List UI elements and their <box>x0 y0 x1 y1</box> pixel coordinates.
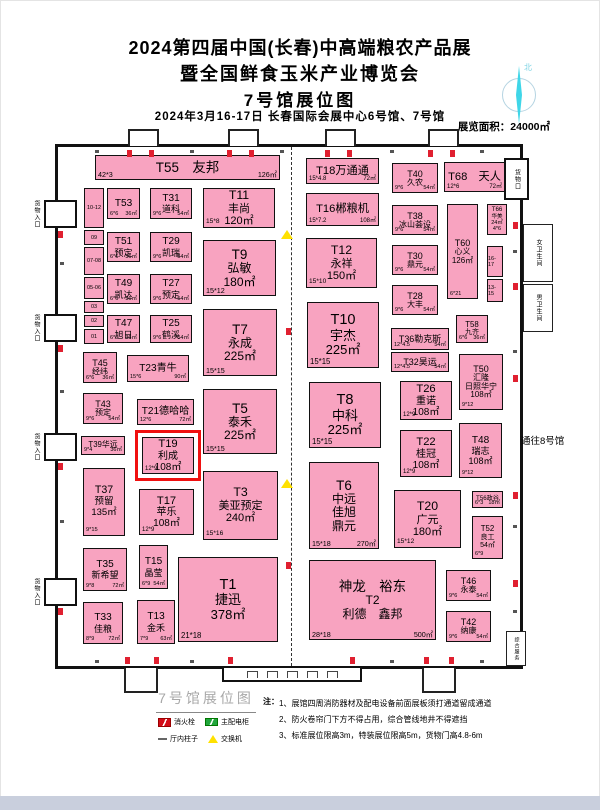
booth-T20[interactable]: T20广元180㎡15*12 <box>394 490 461 548</box>
legend-item-main-power-cabinet: 主配电柜 <box>205 717 249 727</box>
booth-T47[interactable]: T47旭日6*636㎡ <box>107 315 140 343</box>
booth-T23[interactable]: T23青牛15*690㎡ <box>127 355 189 382</box>
bottom-door-1 <box>124 668 158 693</box>
booth-T26[interactable]: T26重诺108㎡12*9 <box>400 381 452 420</box>
booth-T39[interactable]: T39华远9*436㎡ <box>81 436 125 455</box>
entrance-door-glyph <box>267 671 278 678</box>
note-line: 3、标准展位限高3m，特装展位限高5m，货物门高4.8-6m <box>279 728 579 744</box>
pillar-mark <box>480 150 484 153</box>
booth-T48[interactable]: T48瑞志108㎡9*12 <box>459 423 502 478</box>
booth-T49[interactable]: T49凯达6*636㎡ <box>107 274 140 304</box>
top-door-4 <box>428 129 459 146</box>
booth-T11[interactable]: T11丰尚120㎡15*8 <box>203 188 275 228</box>
pillar-mark <box>390 660 394 663</box>
entrance-door-glyph <box>287 671 298 678</box>
goods-entrance-door-4 <box>44 578 77 606</box>
fire-hydrant-icon <box>286 562 291 569</box>
booth-01[interactable]: 01 <box>84 329 104 344</box>
fire-hydrant-icon <box>125 657 130 664</box>
entrance-door-glyph <box>307 671 318 678</box>
goods-door-label: 货物口 <box>514 169 520 190</box>
fire-hydrant-icon <box>424 657 429 664</box>
legend-item-switch: 交换机 <box>208 734 242 744</box>
compass-north-label: 北 <box>524 62 532 73</box>
goods-door-right: 货物口 <box>504 158 529 200</box>
entrance-door-glyph <box>247 671 258 678</box>
note-line: 2、防火卷帘门下方不得占用，综合管线地井不得遮挡 <box>279 712 579 728</box>
fire-hydrant-icon <box>149 150 154 157</box>
booth-T31[interactable]: T31道科9*654㎡ <box>150 188 192 219</box>
main-power-cabinet-icon <box>205 718 218 726</box>
booth-T28[interactable]: T28大丰9*654㎡ <box>392 285 438 315</box>
booth-T7[interactable]: T7永成225㎡15*15 <box>203 309 277 376</box>
bottom-door-2 <box>422 668 456 693</box>
booth-16-17[interactable]: 16-17 <box>487 246 503 277</box>
fire-hydrant-icon <box>347 150 352 157</box>
booth-T35[interactable]: T35新希望9*872㎡ <box>83 548 127 591</box>
pillar-mark <box>513 250 517 253</box>
restroom-women: 女卫生间 <box>523 224 553 282</box>
notes-list: 1、展馆四周消防器材及配电设备前面展板须打通道留成通道2、防火卷帘门下方不得占用… <box>279 696 579 744</box>
center-aisle-dashed-line <box>291 147 292 666</box>
booth-T25[interactable]: T25鹤溪9*654㎡ <box>150 315 192 343</box>
fire-hydrant-icon <box>158 718 171 727</box>
fire-hydrant-icon <box>513 222 518 229</box>
booth-T46[interactable]: T46永泰9*654㎡ <box>446 570 491 601</box>
booth-T60[interactable]: T60心义126㎡6*21 <box>447 204 478 299</box>
booth-T12[interactable]: T12永祥150㎡15*10 <box>306 238 377 288</box>
booth-T68[interactable]: T68 天人12*672㎡ <box>444 162 505 192</box>
fire-hydrant-icon <box>127 150 132 157</box>
booth-05-06[interactable]: 05-06 <box>84 277 104 299</box>
fire-hydrant-icon <box>428 150 433 157</box>
hall-pillar-icon <box>158 738 167 740</box>
booth-07-08[interactable]: 07-08 <box>84 247 104 275</box>
booth-T52[interactable]: T52良工54㎡6*9 <box>472 516 503 559</box>
fire-hydrant-icon <box>58 231 63 238</box>
fire-hydrant-icon <box>227 150 232 157</box>
booth-T42[interactable]: T42纳康9*654㎡ <box>446 611 491 642</box>
pillar-mark <box>60 390 64 393</box>
pillar-mark <box>513 525 517 528</box>
hall-wall-right <box>520 144 523 669</box>
notes-prefix: 注： <box>263 696 279 707</box>
goods-entrance-door-3 <box>44 433 77 461</box>
restroom-women-label: 女卫生间 <box>535 239 541 267</box>
booth-T10[interactable]: T10宇杰225㎡15*15 <box>307 302 379 368</box>
legend-item-label: 厅内柱子 <box>170 734 198 744</box>
main-entrance <box>222 666 362 682</box>
booth-T15[interactable]: T15晶莹6*954㎡ <box>139 545 168 589</box>
booth-T53[interactable]: T536*636㎡ <box>107 188 140 219</box>
booth-T32[interactable]: T32昊运12*4.554㎡ <box>391 352 449 372</box>
booth-T9[interactable]: T9弘敏180㎡15*12 <box>203 240 276 296</box>
booth-T29[interactable]: T29凯瑞9*654㎡ <box>150 232 192 262</box>
booth-T37[interactable]: T37预留135㎡9*15 <box>83 468 125 536</box>
legend-items: 消火栓主配电柜厅内柱子交换机 <box>158 717 262 744</box>
pillar-mark <box>190 150 194 153</box>
booth-02[interactable]: 02 <box>84 315 104 327</box>
booth-T40[interactable]: T40久农9*654㎡ <box>392 163 438 193</box>
restroom-men: 男卫生间 <box>523 284 553 332</box>
booth-T30[interactable]: T30鼎元9*654㎡ <box>392 245 438 275</box>
booth-T27[interactable]: T27预定9*654㎡ <box>150 274 192 304</box>
fire-hydrant-icon <box>350 657 355 664</box>
goods-entrance-label-3: 货物入口 <box>33 433 39 461</box>
goods-entrance-door-1 <box>44 200 77 228</box>
booth-10-12[interactable]: 10-12 <box>84 188 104 228</box>
booth-T55[interactable]: T55 友邦42*3126㎡ <box>95 155 280 180</box>
goods-entrance-door-2 <box>44 314 77 342</box>
booth-T18[interactable]: T18万通通15*4.872㎡ <box>306 158 379 184</box>
fire-hydrant-icon <box>513 375 518 382</box>
booth-03[interactable]: 03 <box>84 301 104 313</box>
fire-hydrant-icon <box>513 580 518 587</box>
booth-T2[interactable]: 神龙 裕东T2利德 鑫邦28*18500㎡ <box>309 560 436 640</box>
pillar-mark <box>390 150 394 153</box>
legend-item-label: 主配电柜 <box>221 717 249 727</box>
fire-hydrant-icon <box>513 492 518 499</box>
restroom-men-label: 男卫生间 <box>535 294 541 322</box>
booth-T19[interactable]: T19利成108㎡12*9 <box>142 437 194 474</box>
booth-T58[interactable]: T58九齐6*636㎡ <box>456 315 488 343</box>
booth-T45[interactable]: T45经纬6*636㎡ <box>83 352 117 383</box>
booth-13-15[interactable]: 13-15 <box>487 279 503 302</box>
goods-entrance-label-4: 货物入口 <box>33 578 39 606</box>
fire-hydrant-icon <box>228 657 233 664</box>
top-door-2 <box>228 129 259 146</box>
page-footer-band <box>0 796 600 810</box>
fire-hydrant-icon <box>449 657 454 664</box>
entrance-door-glyph <box>327 671 338 678</box>
note-line: 1、展馆四周消防器材及配电设备前面展板须打通道留成通道 <box>279 696 579 712</box>
booth-T51[interactable]: T51预定6*636㎡ <box>107 232 140 262</box>
booth-T5[interactable]: T5泰禾225㎡15*15 <box>203 389 277 454</box>
booth-T21[interactable]: T21德哈哈12*672㎡ <box>137 399 194 425</box>
booth-T3[interactable]: T3美亚预定240㎡15*16 <box>203 471 278 540</box>
booth-T17[interactable]: T17苹乐108㎡12*9 <box>139 489 194 535</box>
floor-plan-page: 2024第四届中国(长春)中高端粮农产品展 暨全国鲜食玉米产业博览会 7号馆展位… <box>0 0 600 810</box>
goods-entrance-label-2: 货物入口 <box>33 314 39 342</box>
booth-T8[interactable]: T8中科225㎡15*15 <box>309 382 381 448</box>
fire-hydrant-icon <box>58 608 63 615</box>
booth-T22[interactable]: T22桂冠108㎡12*9 <box>400 430 452 477</box>
page-title-line1: 2024第四届中国(长春)中高端粮农产品展 <box>0 34 600 60</box>
top-door-3 <box>325 129 356 146</box>
booth-T13[interactable]: T13金禾7*963㎡ <box>137 600 175 644</box>
fire-hydrant-icon <box>450 150 455 157</box>
booth-T56[interactable]: T56政谷6*318㎡ <box>472 491 503 508</box>
booth-T33[interactable]: T33佳粮8*972㎡ <box>83 602 123 644</box>
goods-entrance-label-1: 货物入口 <box>33 200 39 228</box>
pillar-mark <box>60 520 64 523</box>
booth-T16[interactable]: T16郴粮机15*7.2108㎡ <box>306 193 379 226</box>
booth-T66[interactable]: T66华美24㎡4*6 <box>487 204 507 235</box>
pillar-mark <box>190 660 194 663</box>
legend-item-label: 交换机 <box>221 734 242 744</box>
pillar-mark <box>60 262 64 265</box>
booth-T6[interactable]: T6中远佳旭鼎元15*18270㎡ <box>309 462 379 549</box>
booth-T38[interactable]: T38冰山荟设9*654㎡ <box>392 205 438 235</box>
booth-09[interactable]: 09 <box>84 230 104 245</box>
booth-T43[interactable]: T43预定9*654㎡ <box>83 393 123 424</box>
booth-T36[interactable]: T36勒克斯12*4.554㎡ <box>391 328 449 350</box>
pillar-mark <box>95 150 99 153</box>
fire-hydrant-icon <box>58 345 63 352</box>
fire-hydrant-icon <box>154 657 159 664</box>
pillar-mark <box>480 660 484 663</box>
legend-title: 7号馆展位图 <box>156 688 256 713</box>
switch-icon <box>208 735 218 743</box>
compass-icon: 北 <box>498 62 540 132</box>
service-room-label: 综合服务 <box>514 637 519 661</box>
service-room: 综合服务 <box>506 631 526 666</box>
pillar-mark <box>513 350 517 353</box>
fire-hydrant-icon <box>286 328 291 335</box>
fire-hydrant-icon <box>325 150 330 157</box>
fire-hydrant-icon <box>249 150 254 157</box>
fire-hydrant-icon <box>513 283 518 290</box>
pillar-mark <box>513 610 517 613</box>
legend-item-hall-pillar: 厅内柱子 <box>158 734 198 744</box>
legend-item-label: 消火栓 <box>174 717 195 727</box>
fire-hydrant-icon <box>58 463 63 470</box>
pillar-mark <box>95 660 99 663</box>
top-door-1 <box>128 129 159 146</box>
booth-T1[interactable]: T1捷迅378㎡21*18 <box>178 557 278 642</box>
booth-T50[interactable]: T50汇隆日照华宁108㎡9*12 <box>459 354 503 410</box>
to-hall8-label: 通往8号馆 <box>521 433 564 447</box>
legend-item-fire-hydrant: 消火栓 <box>158 717 195 727</box>
pillar-mark <box>280 150 284 153</box>
